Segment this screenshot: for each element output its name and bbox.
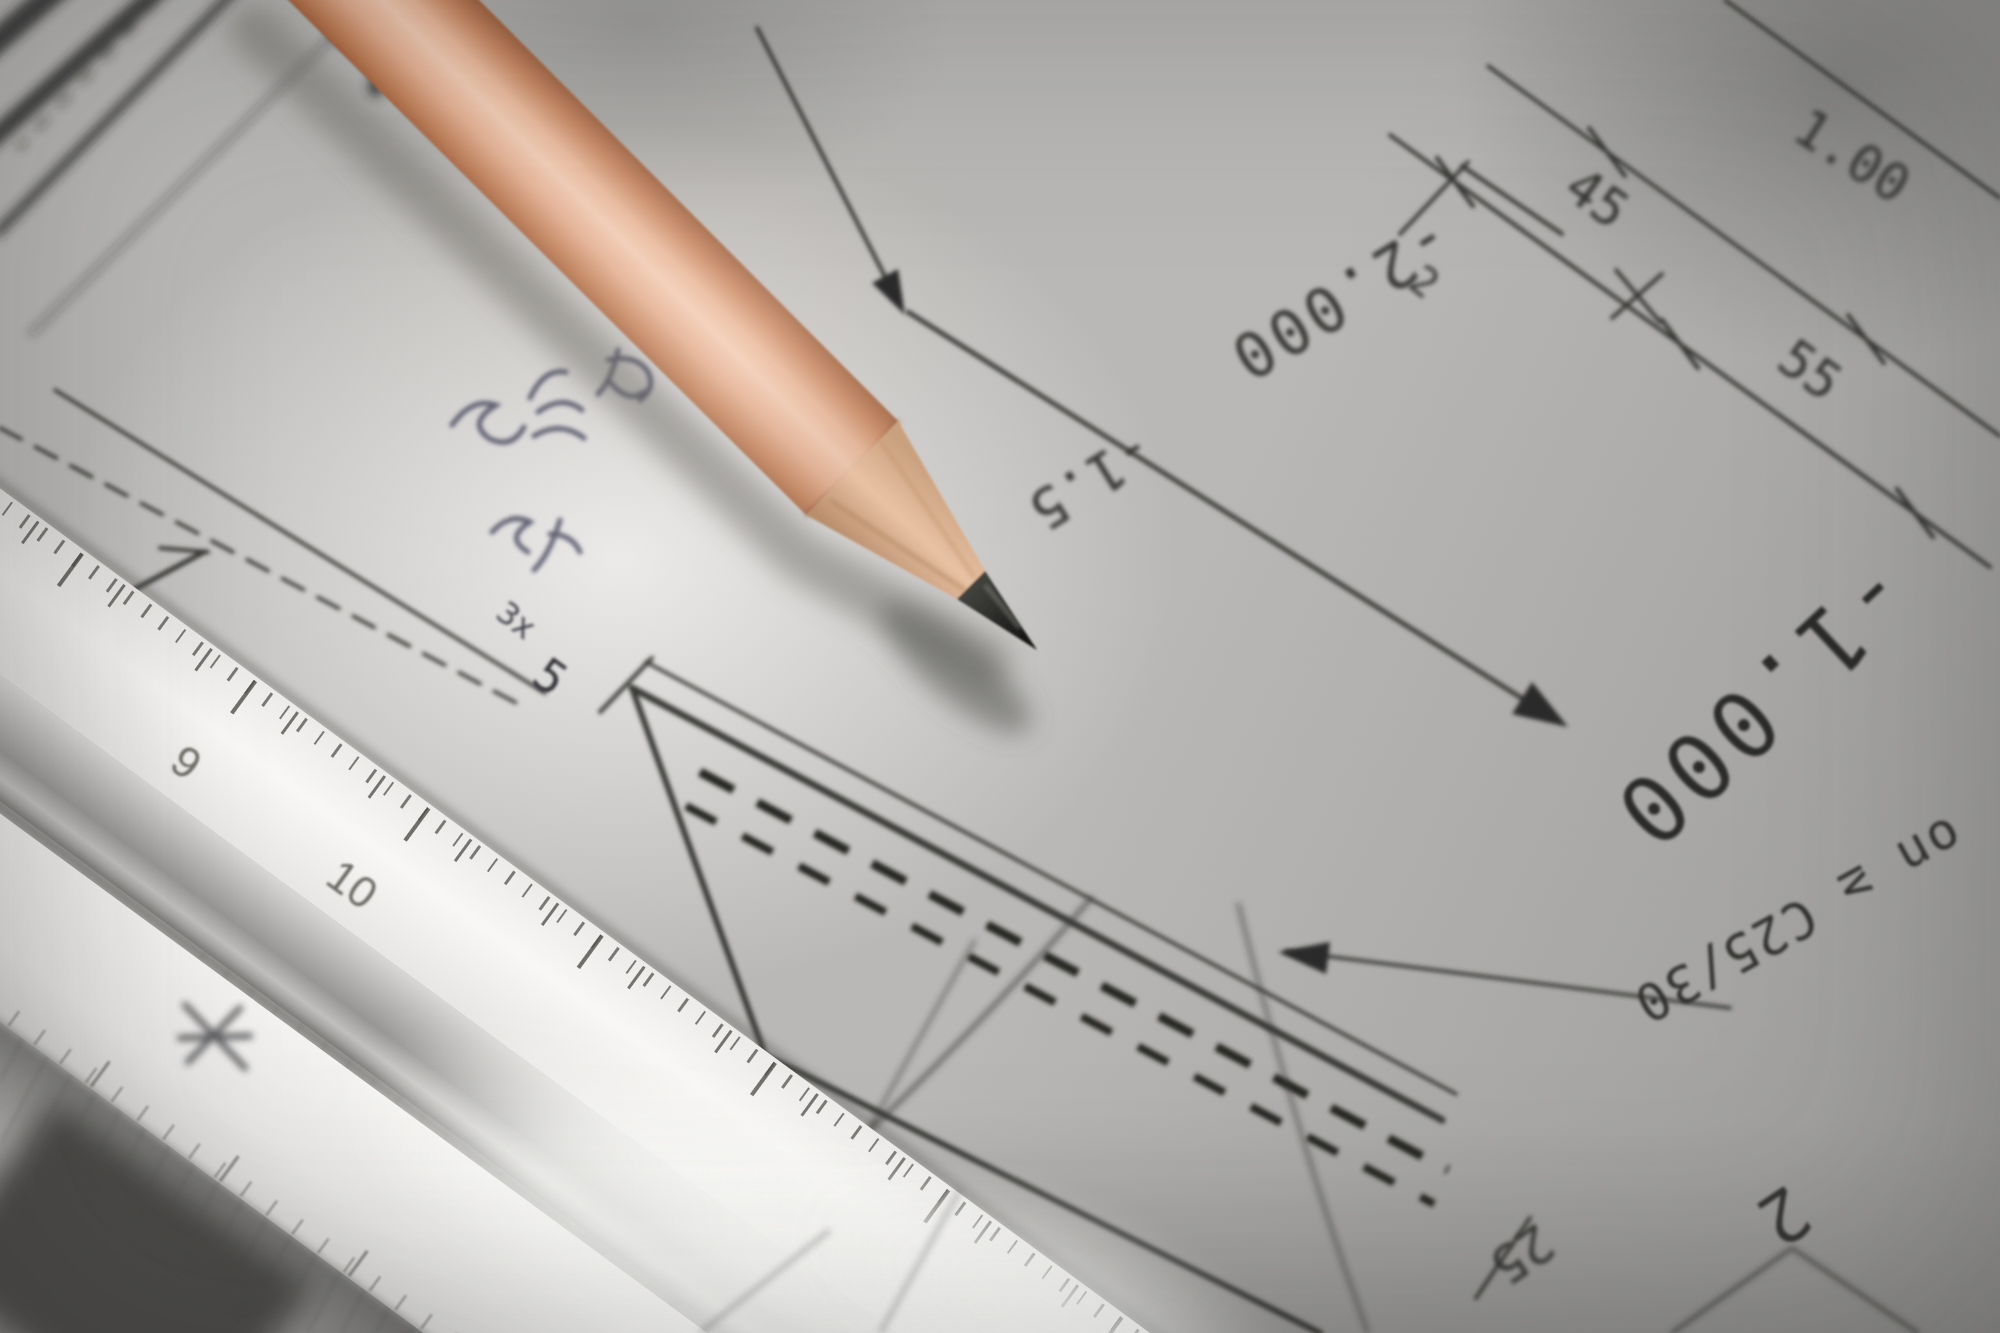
photo-stage: -2.000 -1.5 -1.000 on ≥ C25/30 45 55 1.0… bbox=[0, 0, 2000, 1333]
vignette bbox=[0, 0, 2000, 1333]
